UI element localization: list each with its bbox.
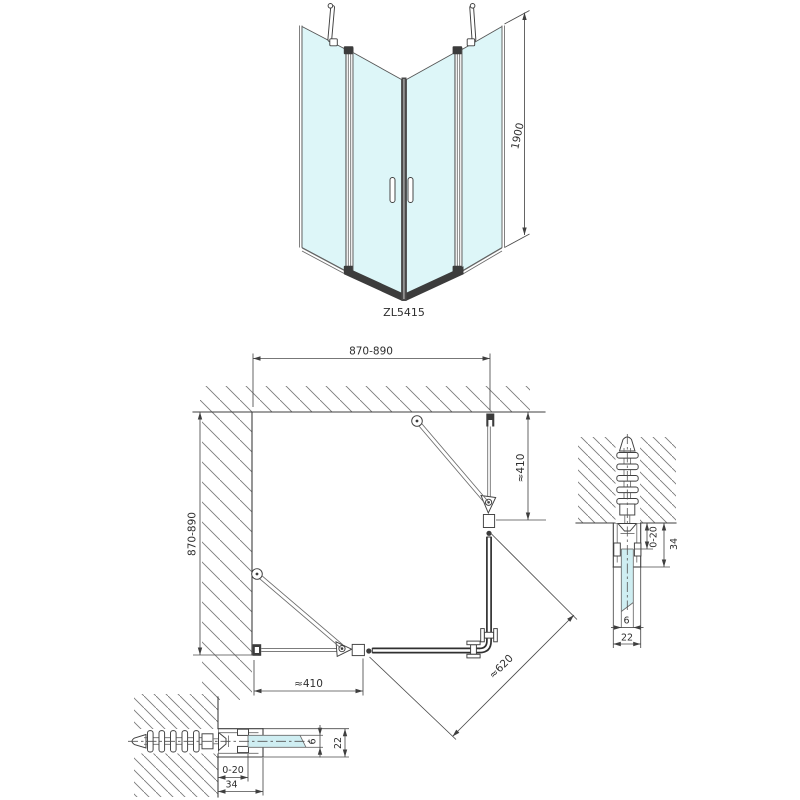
left-door-glass-panel: [353, 53, 402, 297]
product-code-label: ZL5415: [383, 306, 425, 319]
detail-bottom-glass-thickness-label: 6: [308, 738, 319, 744]
detail-right-profile-width-label: 22: [621, 633, 633, 644]
left-fixed-glass-panel: [302, 27, 346, 272]
detail-right-wall-gap-label: 0-20: [649, 526, 660, 548]
shower-enclosure-drawing: 1900 ZL5415: [0, 0, 800, 800]
right-connecting-profile: [483, 515, 494, 528]
right-door-glass-panel: [407, 53, 456, 297]
left-wall-hatch: [202, 412, 252, 700]
detail-right-glass-thickness-label: 6: [623, 616, 629, 627]
right-door-handle: [408, 178, 413, 203]
left-door-handle: [390, 178, 395, 203]
top-width-label: 870-890: [349, 346, 393, 358]
detail-right-profile-depth-label: 34: [669, 538, 680, 550]
detail-bottom-profile-depth-label: 34: [225, 780, 237, 791]
right-fixed-glass-panel: [462, 27, 502, 272]
center-corner-post: [402, 78, 407, 302]
left-depth-label: 870-890: [187, 512, 199, 556]
top-wall-hatch: [200, 386, 530, 412]
bottom-connecting-profile: [352, 644, 364, 655]
detail-bottom-wall-gap-label: 0-20: [222, 765, 244, 776]
bottom-segment-label: ≈410: [294, 678, 323, 690]
technical-drawing-page: 1900 ZL5415: [0, 0, 800, 800]
detail-bottom-profile-width-label: 22: [333, 737, 344, 749]
right-segment-label: ≈410: [515, 454, 527, 483]
